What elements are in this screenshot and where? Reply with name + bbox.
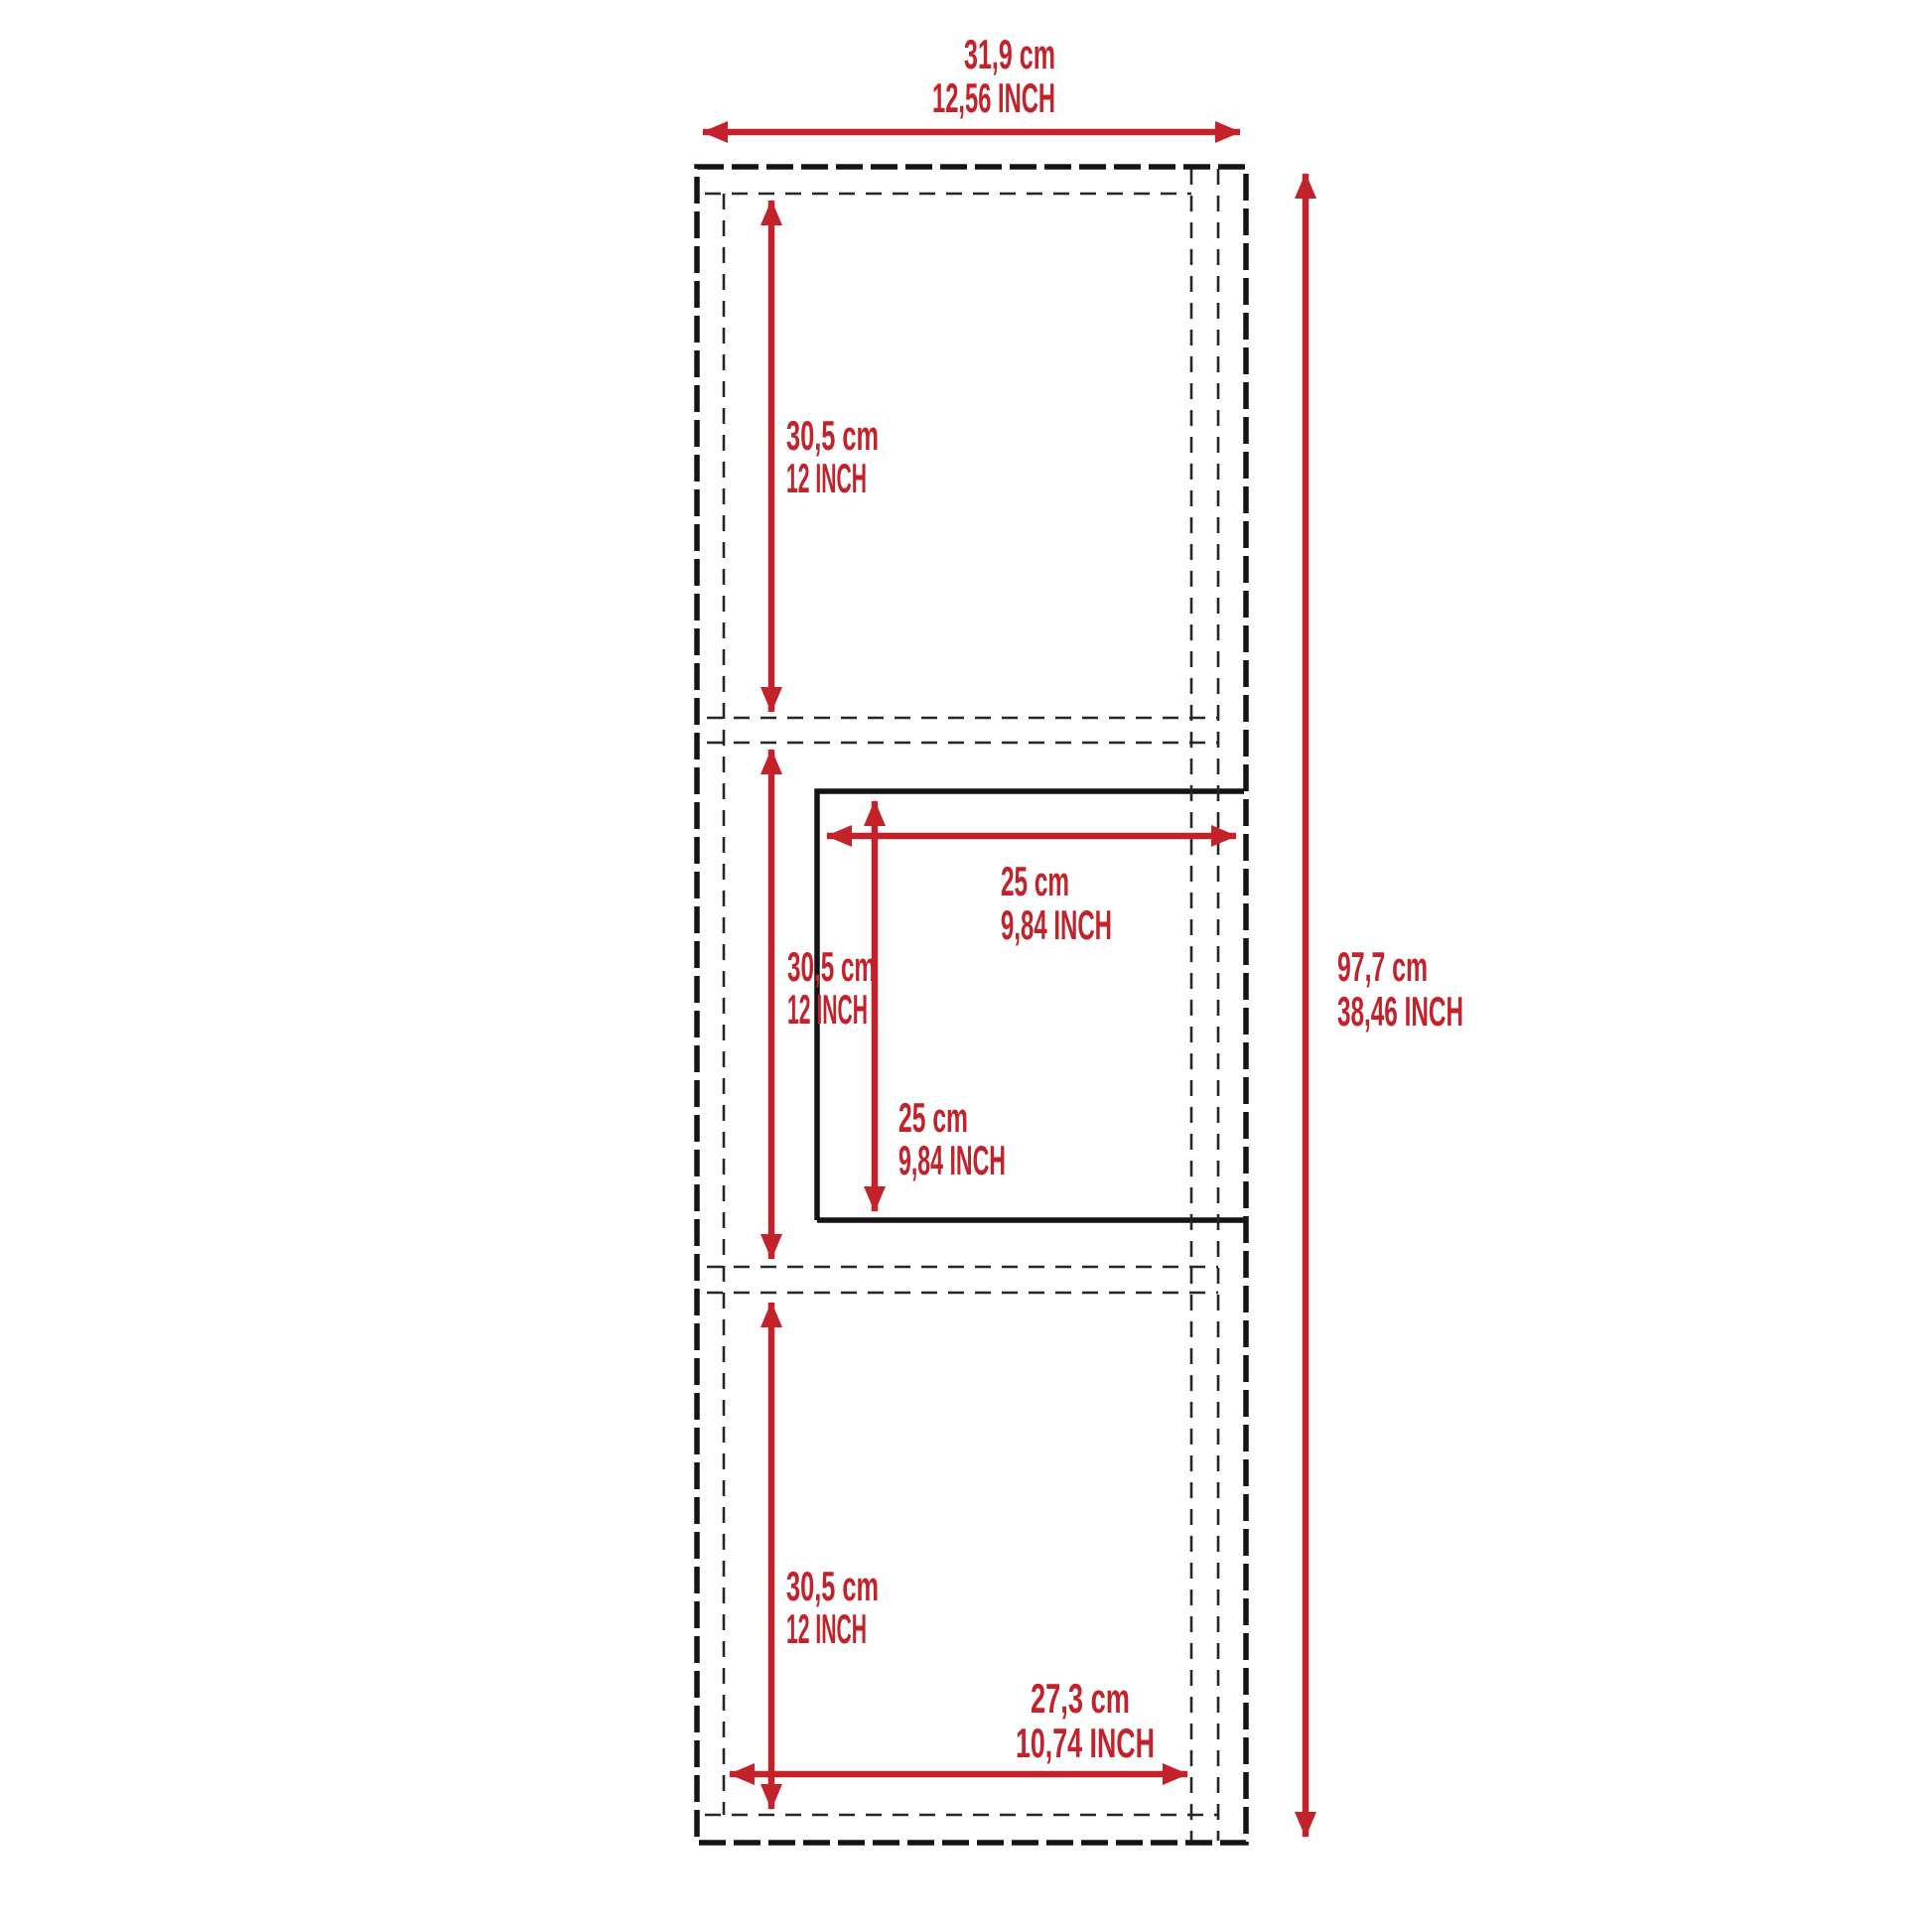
top-section-label-inch: 12 INCH	[786, 455, 867, 501]
bottom-section-label-cm: 30,5 cm	[786, 1563, 879, 1609]
middle-section-label-cm: 30,5 cm	[787, 943, 876, 990]
drawer-outline	[817, 791, 1244, 1220]
interior-width-label-cm: 27,3 cm	[1031, 1675, 1130, 1722]
drawer-height-label-inch: 9,84 INCH	[898, 1137, 1006, 1183]
cabinet-dimension-diagram: 31,9 cm 12,56 INCH 97,7 cm 38,46 INCH 30…	[0, 0, 1932, 1932]
overall-height-label-cm: 97,7 cm	[1337, 943, 1428, 990]
drawer-width-label-cm: 25 cm	[1001, 858, 1069, 904]
cabinet-outer-outline	[697, 167, 1246, 1843]
drawer-height-label-cm: 25 cm	[898, 1094, 968, 1141]
dimension-diagram-canvas: 31,9 cm 12,56 INCH 97,7 cm 38,46 INCH 30…	[0, 0, 1932, 1932]
overall-width-label-inch: 12,56 INCH	[932, 74, 1055, 121]
bottom-section-label-inch: 12 INCH	[786, 1605, 867, 1652]
overall-width-label-cm: 31,9 cm	[964, 31, 1055, 77]
top-section-label-cm: 30,5 cm	[786, 412, 879, 459]
middle-section-label-inch: 12 INCH	[787, 986, 868, 1033]
drawer-width-label-inch: 9,84 INCH	[1001, 901, 1112, 948]
interior-width-label-inch: 10,74 INCH	[1016, 1720, 1155, 1766]
overall-height-label-inch: 38,46 INCH	[1337, 988, 1463, 1035]
cabinet-outline-group	[697, 167, 1246, 1843]
dimension-labels: 31,9 cm 12,56 INCH 97,7 cm 38,46 INCH 30…	[786, 31, 1463, 1766]
dashed-construction-lines	[705, 169, 1218, 1841]
